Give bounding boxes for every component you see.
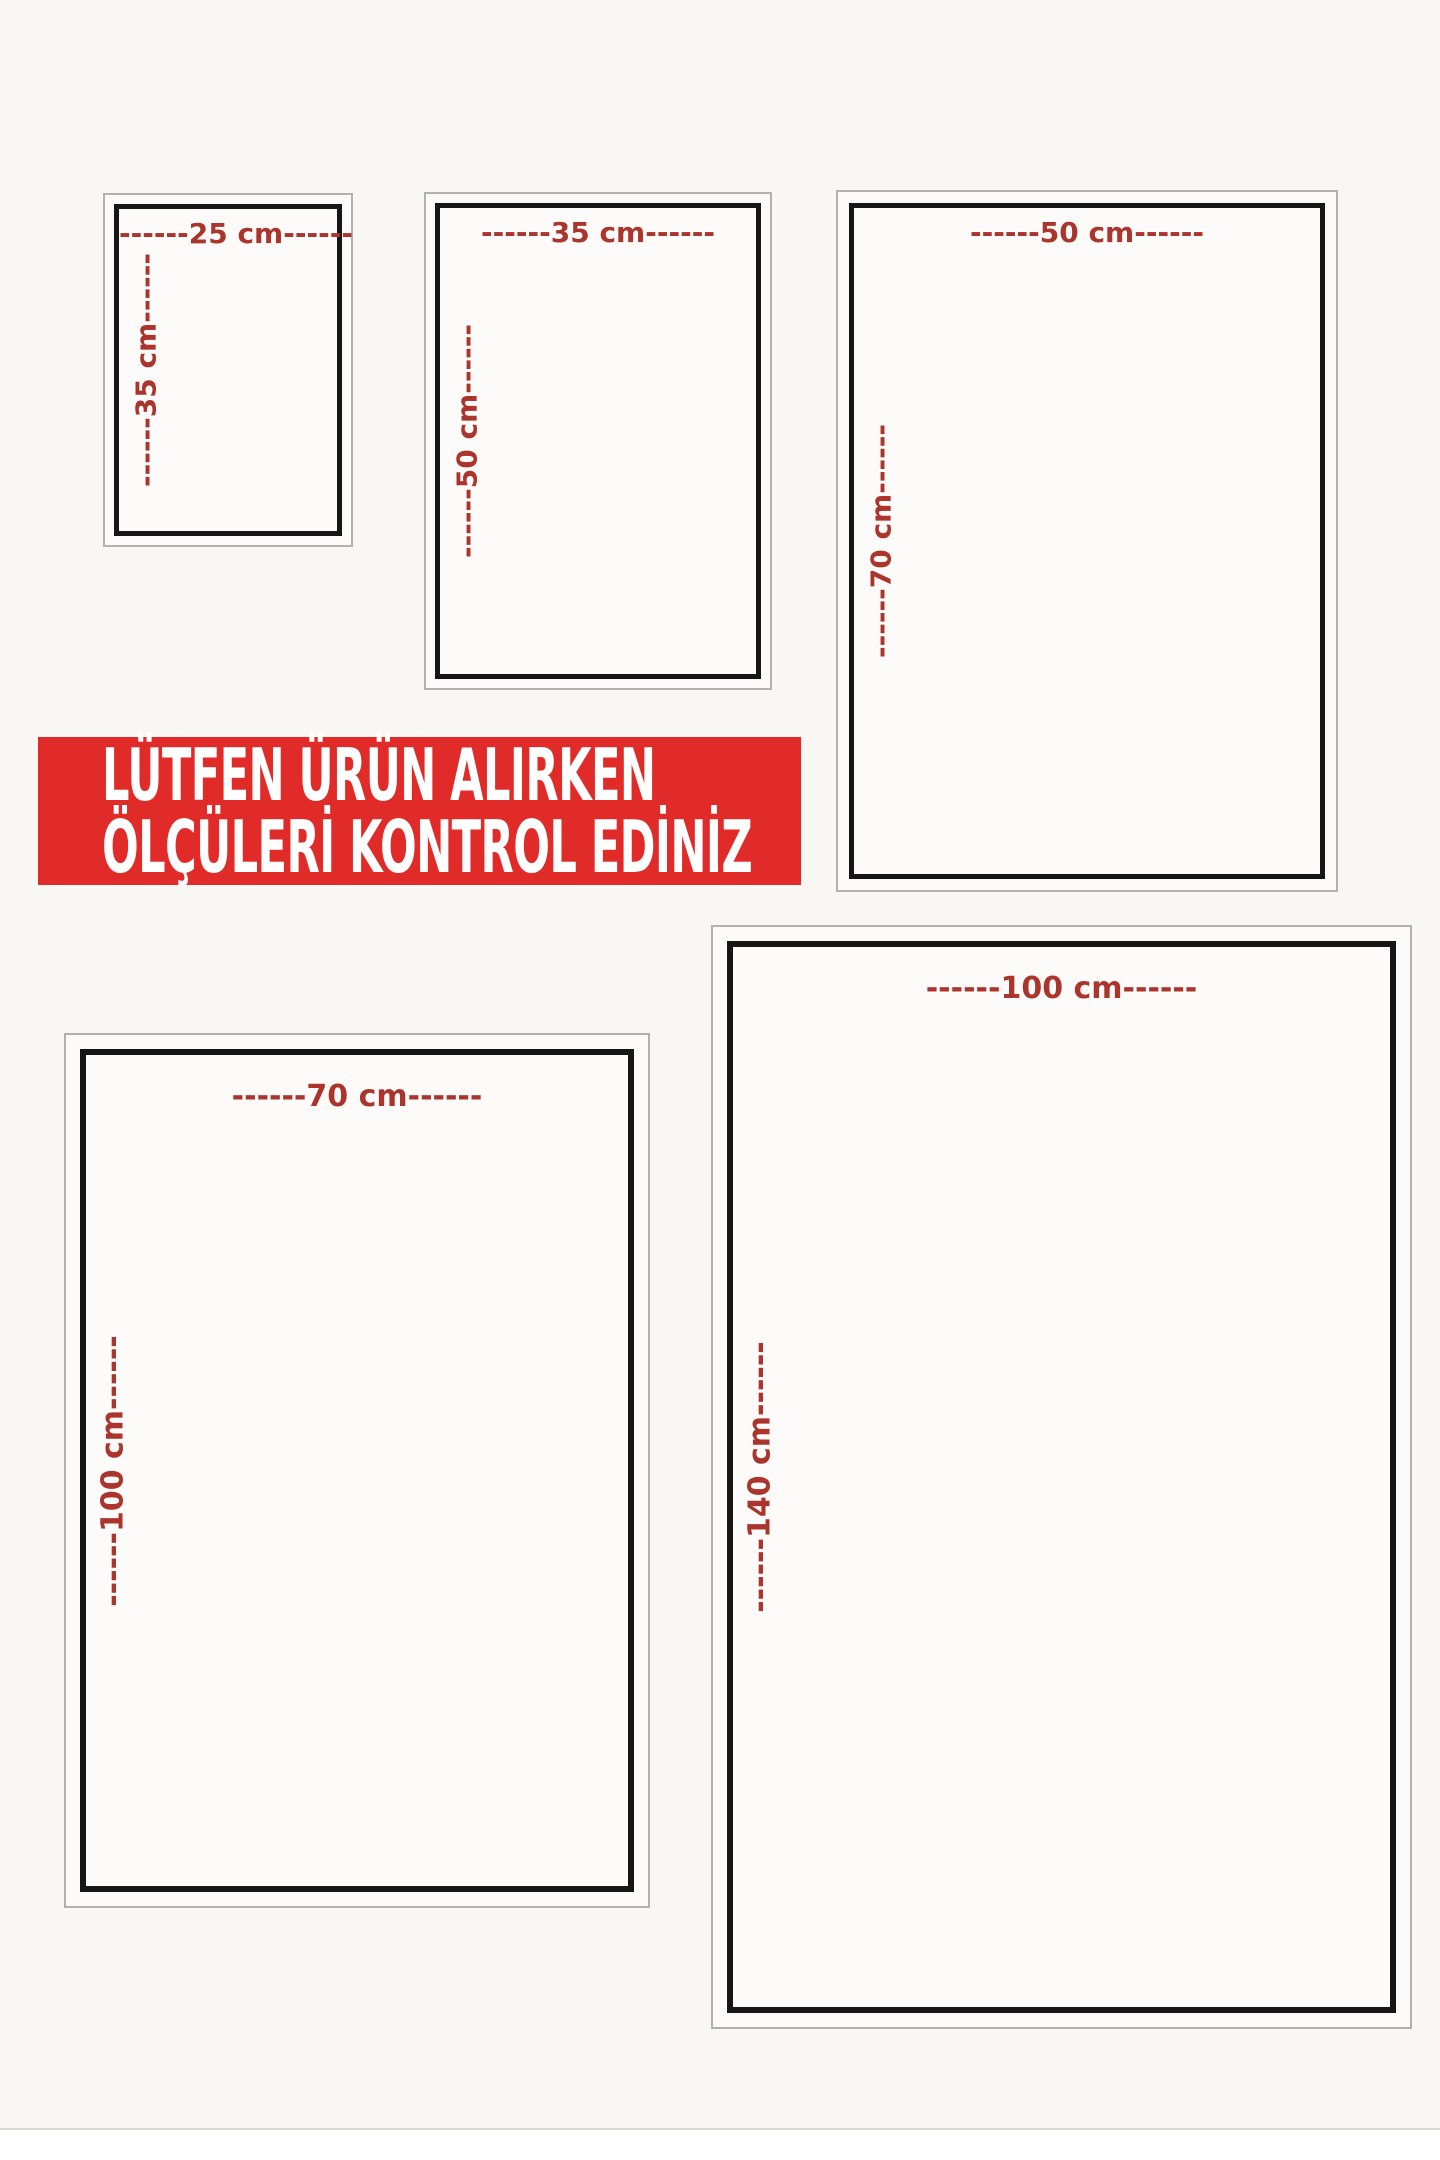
notice-banner-line2: ÖLÇÜLERİ KONTROL EDİNİZ: [102, 811, 521, 883]
height-label-35cm: ------35 cm------: [130, 253, 163, 487]
height-label-140cm: ------140 cm------: [743, 1341, 778, 1613]
size-frame-25x35: ------25 cm------ ------35 cm------: [103, 193, 353, 547]
size-frame-50x70-inner: ------50 cm------ ------70 cm------: [849, 203, 1325, 879]
size-guide-poster: ------25 cm------ ------35 cm------ ----…: [0, 0, 1440, 2160]
width-label-70cm: ------70 cm------: [86, 1079, 628, 1114]
size-frame-70x100: ------70 cm------ ------100 cm------: [64, 1033, 650, 1908]
height-label-70cm: ------70 cm------: [865, 424, 898, 658]
size-frame-100x140: ------100 cm------ ------140 cm------: [711, 925, 1412, 2029]
width-label-50cm: ------50 cm------: [854, 216, 1320, 249]
size-frame-35x50: ------35 cm------ ------50 cm------: [424, 192, 772, 690]
size-frame-70x100-inner: ------70 cm------ ------100 cm------: [80, 1049, 634, 1892]
size-frame-35x50-inner: ------35 cm------ ------50 cm------: [435, 203, 761, 679]
size-frame-50x70: ------50 cm------ ------70 cm------: [836, 190, 1338, 892]
height-label-100cm: ------100 cm------: [96, 1335, 131, 1607]
width-label-100cm: ------100 cm------: [733, 971, 1390, 1006]
notice-banner: LÜTFEN ÜRÜN ALIRKEN ÖLÇÜLERİ KONTROL EDİ…: [38, 737, 801, 885]
photo-bottom-margin: [0, 2128, 1440, 2160]
width-label-35cm: ------35 cm------: [440, 216, 756, 249]
notice-banner-line1: LÜTFEN ÜRÜN ALIRKEN: [102, 739, 521, 811]
width-label-25cm: ------25 cm------: [119, 217, 337, 250]
height-label-50cm: ------50 cm------: [451, 324, 484, 558]
size-frame-100x140-inner: ------100 cm------ ------140 cm------: [727, 941, 1396, 2013]
size-frame-25x35-inner: ------25 cm------ ------35 cm------: [114, 204, 342, 536]
